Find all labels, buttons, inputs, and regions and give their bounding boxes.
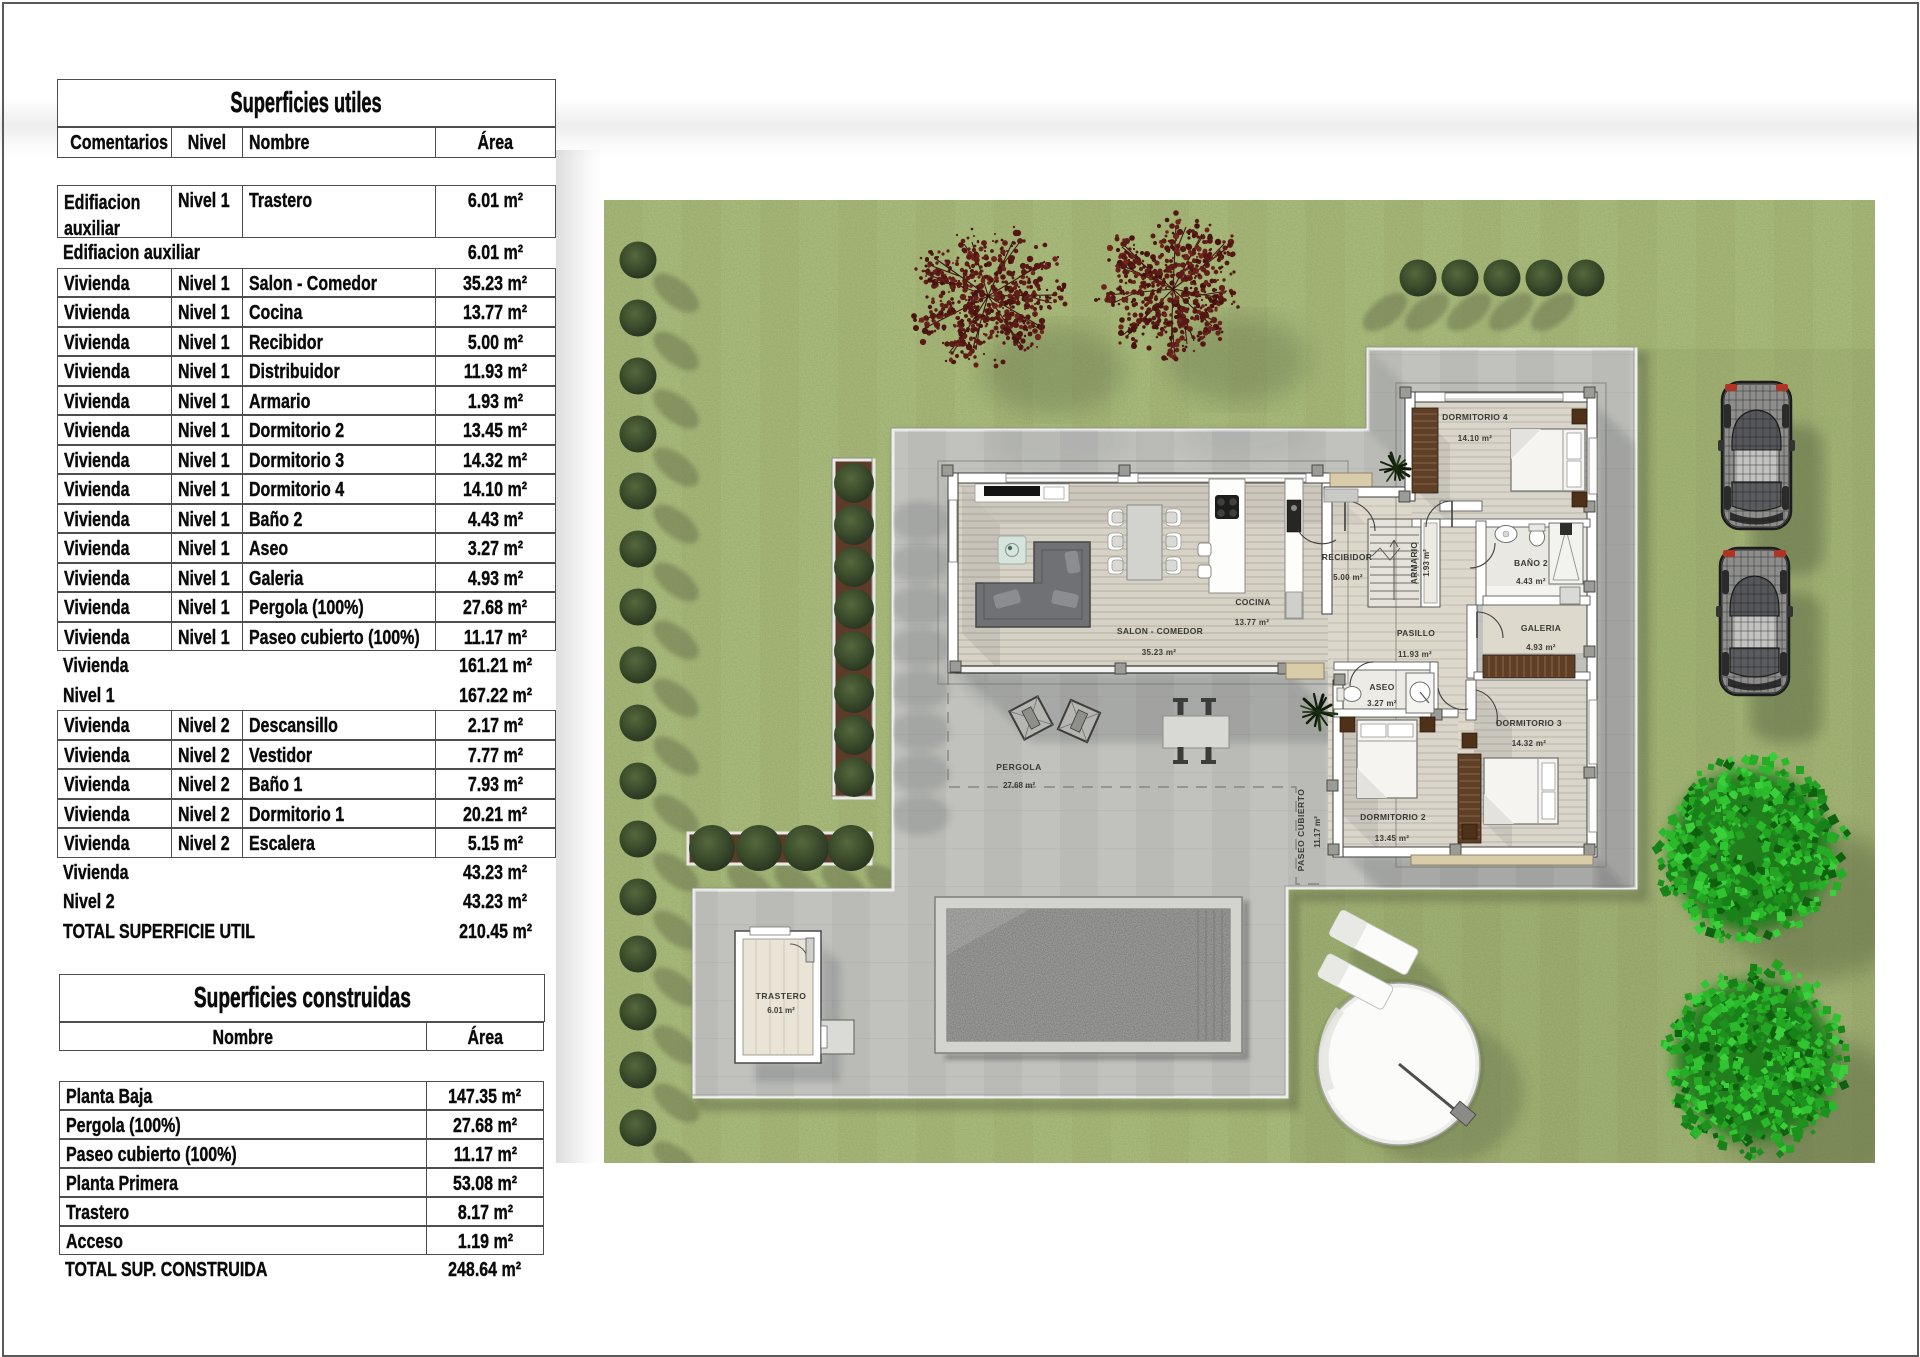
svg-text:BAÑO 2: BAÑO 2 (1514, 558, 1548, 568)
svg-text:11.17 m²: 11.17 m² (1313, 816, 1322, 848)
svg-text:14.32 m²: 14.32 m² (1512, 739, 1546, 748)
svg-text:PERGOLA: PERGOLA (996, 762, 1042, 772)
svg-text:5.00 m²: 5.00 m² (1333, 573, 1363, 582)
svg-text:4.93 m²: 4.93 m² (1526, 643, 1556, 652)
svg-text:27.68 m²: 27.68 m² (1003, 781, 1035, 790)
svg-text:3.27 m²: 3.27 m² (1367, 699, 1397, 708)
svg-text:TRASTERO: TRASTERO (756, 991, 807, 1001)
svg-text:SALON - COMEDOR: SALON - COMEDOR (1117, 626, 1203, 636)
svg-text:PASILLO: PASILLO (1397, 628, 1435, 638)
svg-text:DORMITORIO 2: DORMITORIO 2 (1360, 812, 1426, 822)
svg-text:RECIBIDOR: RECIBIDOR (1322, 552, 1372, 562)
svg-text:35.23 m²: 35.23 m² (1142, 648, 1176, 657)
svg-text:COCINA: COCINA (1235, 597, 1270, 607)
svg-text:13.77 m²: 13.77 m² (1235, 618, 1269, 627)
svg-text:DORMITORIO 3: DORMITORIO 3 (1496, 718, 1562, 728)
svg-text:11.93 m²: 11.93 m² (1398, 650, 1432, 659)
svg-text:ASEO: ASEO (1369, 682, 1394, 692)
svg-text:GALERIA: GALERIA (1521, 623, 1561, 633)
svg-text:DORMITORIO 4: DORMITORIO 4 (1442, 412, 1508, 422)
svg-text:14.10 m²: 14.10 m² (1458, 434, 1492, 443)
svg-text:13.45 m²: 13.45 m² (1375, 834, 1409, 843)
svg-text:ARMARIO: ARMARIO (1409, 542, 1419, 585)
svg-text:4.43 m²: 4.43 m² (1516, 577, 1546, 586)
svg-text:1.93 m²: 1.93 m² (1422, 549, 1431, 577)
svg-text:6.01 m²: 6.01 m² (767, 1006, 795, 1015)
svg-text:PASEO CUBIERTO: PASEO CUBIERTO (1296, 789, 1306, 872)
